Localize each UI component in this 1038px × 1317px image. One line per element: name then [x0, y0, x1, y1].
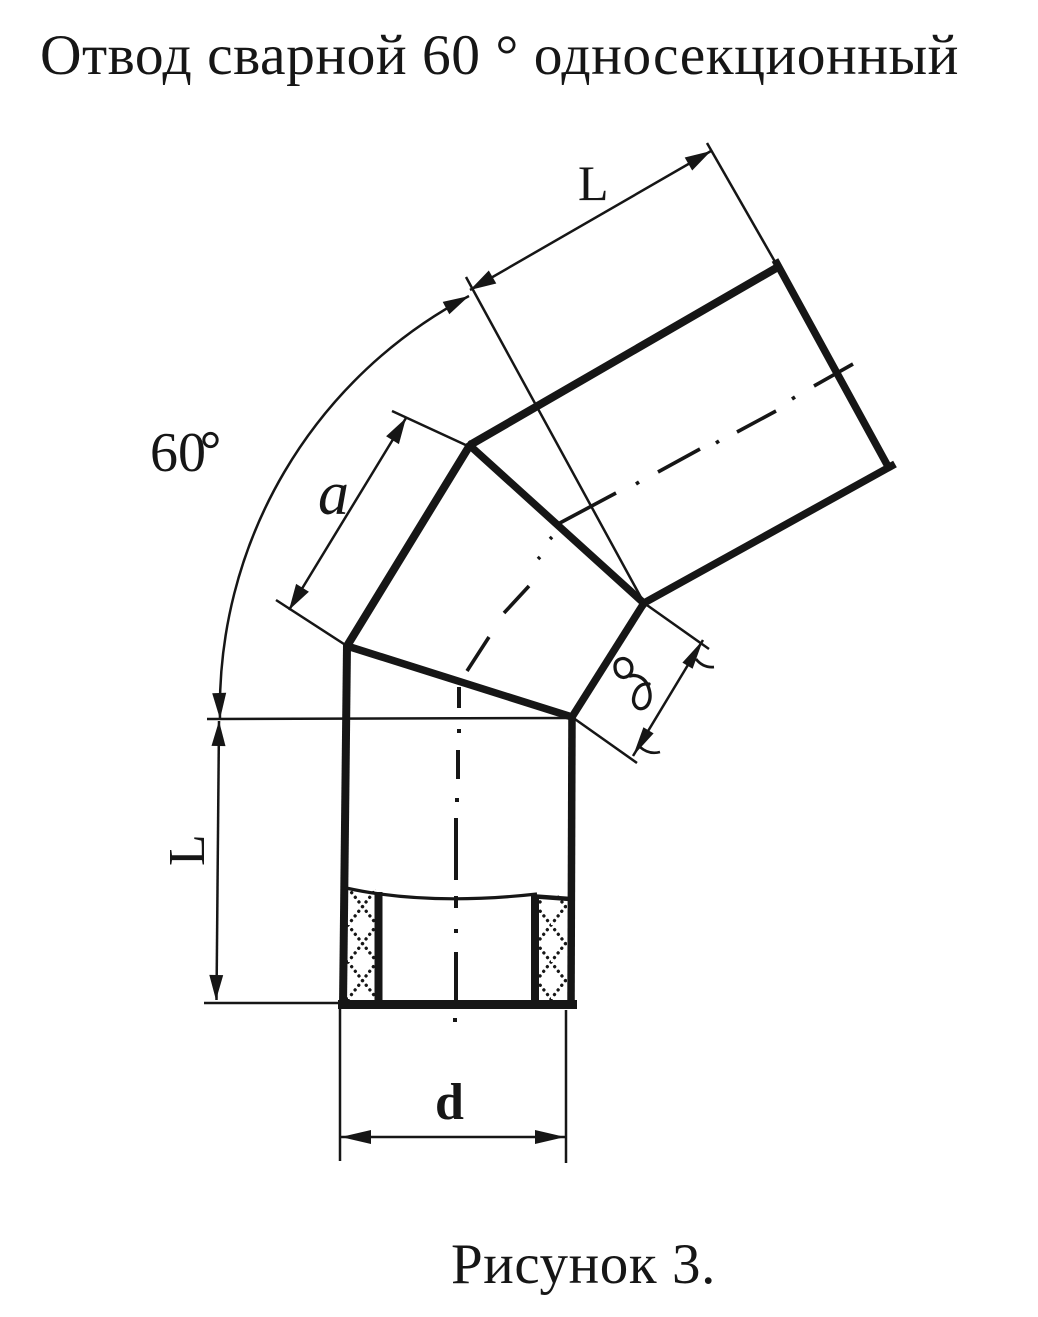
svg-text:60: 60	[150, 422, 206, 484]
svg-text:L: L	[159, 834, 216, 866]
svg-text:Отвод сварной 60 ° односекцион: Отвод сварной 60 ° односекционный	[40, 24, 959, 87]
svg-text:d: d	[435, 1074, 464, 1131]
svg-text:Рисунок 3.: Рисунок 3.	[451, 1233, 716, 1296]
svg-text:a: a	[318, 460, 349, 528]
svg-text:L: L	[578, 155, 609, 211]
